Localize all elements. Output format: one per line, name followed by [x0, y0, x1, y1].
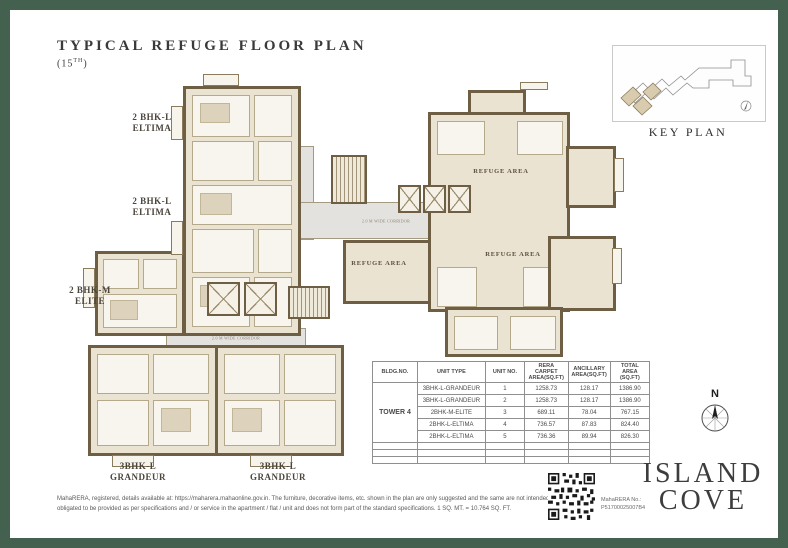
ancillary-area-cell: 78.04: [568, 407, 610, 419]
balcony: [612, 248, 622, 284]
unit-no-cell: 1: [485, 383, 524, 395]
total-area-cell: 826.30: [610, 431, 649, 443]
unit-label-grandeur-2: 3BHK-LGRANDEUR: [233, 461, 323, 484]
bldg-no-cell: TOWER 4: [373, 383, 418, 443]
rera-area-cell: 1258.73: [525, 383, 569, 395]
wing-lower-grandeur: [88, 345, 344, 456]
rera-area-cell: 1258.73: [525, 395, 569, 407]
col-header-rera: RERA CARPET AREA(SQ.FT): [525, 362, 569, 383]
refuge-area-label-2: REFUGE AREA: [333, 260, 425, 267]
col-header-unit-type: UNIT TYPE: [417, 362, 485, 383]
unit-type-cell: 2BHK-L-ELTIMA: [417, 431, 485, 443]
room: [97, 354, 149, 394]
wing-upper-eltima: [183, 86, 301, 336]
table-row: TOWER 4 3BHK-L-GRANDEUR 1 1258.73 128.17…: [373, 383, 650, 395]
unit-type-cell: 2BHK-M-ELITE: [417, 407, 485, 419]
balcony: [203, 74, 239, 86]
unit-label-elite: 2 BHK-MELITE: [45, 285, 135, 308]
unit-type-cell: 3BHK-L-GRANDEUR: [417, 395, 485, 407]
lift-shaft: [398, 185, 421, 213]
staircase: [331, 155, 367, 204]
table-empty-row: [373, 450, 650, 457]
room: [517, 121, 563, 155]
ancillary-area-cell: 128.17: [568, 383, 610, 395]
refuge-floor-plan-page: TYPICAL REFUGE FLOOR PLAN (15TH) KEY PLA…: [0, 0, 788, 548]
rera-area-cell: 736.57: [525, 419, 569, 431]
room: [510, 316, 556, 350]
room: [437, 267, 477, 307]
ancillary-area-cell: 128.17: [568, 395, 610, 407]
col-header-bldg: BLDG.NO.: [373, 362, 418, 383]
island-cove-logo: ISLAND COVE: [638, 461, 768, 514]
bed-furniture: [232, 408, 262, 432]
unit-label-eltima-2: 2 BHK-LELTIMA: [107, 196, 197, 219]
room: [224, 354, 280, 394]
room: [258, 229, 292, 273]
ancillary-area-cell: 87.83: [568, 419, 610, 431]
room: [192, 229, 254, 273]
table-empty-row: [373, 443, 650, 450]
lift-shaft: [244, 282, 277, 316]
lift-shaft: [448, 185, 471, 213]
lift-shaft: [423, 185, 446, 213]
balcony: [614, 158, 624, 192]
unit-type-cell: 3BHK-L-GRANDEUR: [417, 383, 485, 395]
room: [284, 354, 336, 394]
wing-right-ext-upper: [566, 146, 616, 208]
unit-no-cell: 4: [485, 419, 524, 431]
staircase: [288, 286, 330, 319]
ancillary-area-cell: 89.94: [568, 431, 610, 443]
qr-code-icon: [548, 473, 595, 520]
room: [143, 259, 177, 289]
refuge-area-label-1: REFUGE AREA: [455, 168, 547, 175]
col-header-unit-no: UNIT NO.: [485, 362, 524, 383]
lift-shaft: [207, 282, 240, 316]
bed-furniture: [200, 103, 230, 123]
refuge-area-label-3: REFUGE AREA: [467, 251, 559, 258]
disclaimer-text: MahaRERA, registered, details available …: [57, 495, 557, 514]
room: [153, 354, 209, 394]
total-area-cell: 824.40: [610, 419, 649, 431]
unit-no-cell: 3: [485, 407, 524, 419]
room: [258, 141, 292, 181]
unit-label-eltima-1: 2 BHK-LELTIMA: [107, 112, 197, 135]
north-compass-icon: N: [697, 385, 733, 439]
rera-area-cell: 736.36: [525, 431, 569, 443]
col-header-total: TOTAL AREA (SQ.FT): [610, 362, 649, 383]
wing-right-ext-lower: [548, 236, 616, 311]
unit-label-grandeur-1: 3BHK-LGRANDEUR: [93, 461, 183, 484]
balcony: [520, 82, 548, 90]
room: [437, 121, 485, 155]
floor-number-note: (15TH): [57, 58, 88, 69]
room: [192, 141, 254, 181]
rera-area-cell: 689.11: [525, 407, 569, 419]
unit-type-cell: 2BHK-L-ELTIMA: [417, 419, 485, 431]
room: [284, 400, 336, 446]
wing-right-bottom: [445, 307, 563, 357]
page-title: TYPICAL REFUGE FLOOR PLAN: [57, 38, 367, 55]
unit-no-cell: 2: [485, 395, 524, 407]
total-area-cell: 1386.90: [610, 383, 649, 395]
room: [254, 95, 292, 137]
key-plan-label: KEY PLAN: [612, 125, 764, 140]
bed-furniture: [200, 193, 232, 215]
svg-text:N: N: [711, 388, 719, 400]
col-header-ancillary: ANCILLARY AREA(SQ.FT): [568, 362, 610, 383]
area-statement-table: BLDG.NO. UNIT TYPE UNIT NO. RERA CARPET …: [372, 361, 650, 464]
refuge-area-block: [343, 240, 431, 304]
key-plan-box: [612, 45, 766, 122]
key-plan-drawing: [613, 46, 763, 119]
room: [97, 400, 149, 446]
unit-divider-wall: [215, 348, 218, 453]
total-area-cell: 767.15: [610, 407, 649, 419]
table-empty-row: [373, 457, 650, 464]
balcony: [171, 221, 183, 255]
total-area-cell: 1386.90: [610, 395, 649, 407]
unit-no-cell: 5: [485, 431, 524, 443]
bed-furniture: [161, 408, 191, 432]
room: [454, 316, 498, 350]
